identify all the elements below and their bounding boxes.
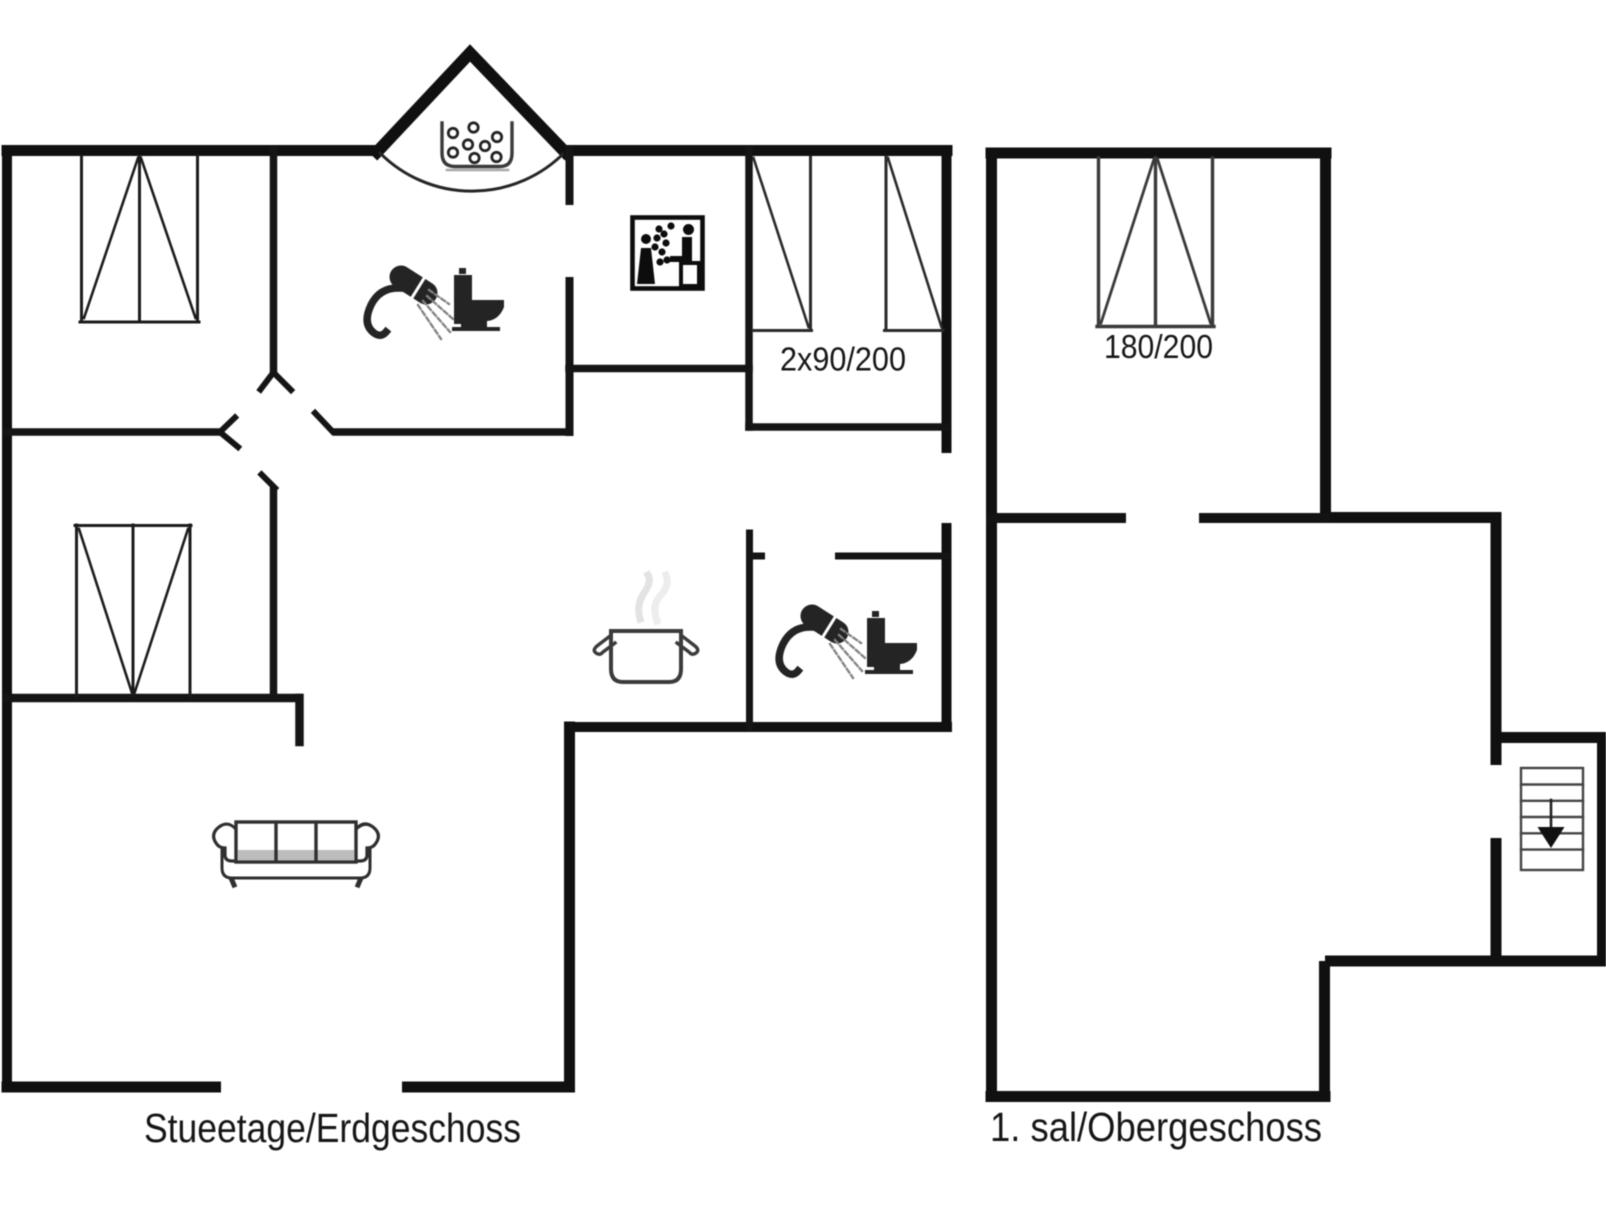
svg-text:2x90/200: 2x90/200 [780, 341, 906, 378]
svg-text:180/200: 180/200 [1104, 328, 1213, 365]
svg-text:1. sal/Obergeschoss: 1. sal/Obergeschoss [990, 1104, 1322, 1150]
svg-text:Stueetage/Erdgeschoss: Stueetage/Erdgeschoss [144, 1105, 521, 1151]
